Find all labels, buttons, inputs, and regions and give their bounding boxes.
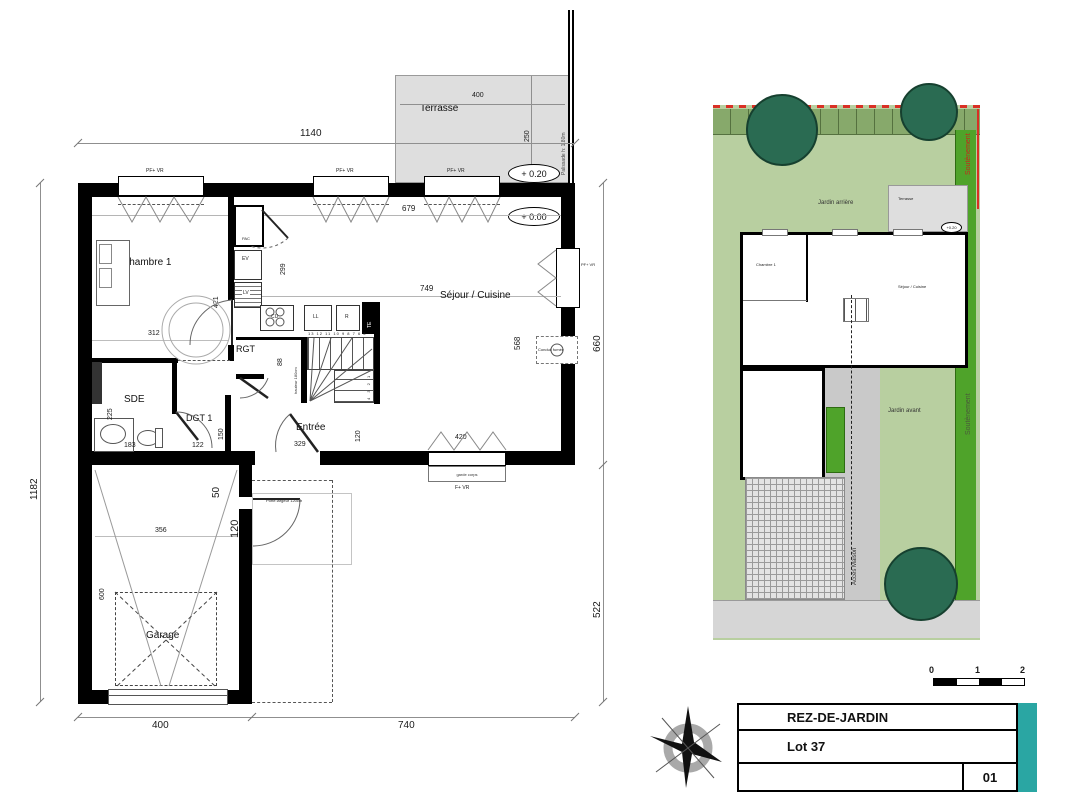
scalebar-1: 1 bbox=[975, 665, 980, 675]
terrasse-dim-line bbox=[400, 104, 565, 105]
stairs-numbers-top: 13 12 11 10 9 8 7 6 5 bbox=[308, 331, 367, 336]
dim-chambre-h: 421 bbox=[213, 296, 220, 308]
window-sejour-2-sill bbox=[424, 204, 500, 205]
site-sejour-label: Séjour / Cuisine bbox=[898, 284, 926, 289]
site-house-wall-1 bbox=[806, 232, 808, 302]
wall-sde-right bbox=[172, 358, 177, 414]
garde-corps-rail: garde corps bbox=[428, 466, 506, 482]
entry-door-gap bbox=[255, 451, 320, 465]
soutenement-label-top: Soutènement bbox=[965, 133, 972, 175]
level-marker-000: + 0.00 bbox=[508, 207, 560, 226]
dim-left: 1182 bbox=[29, 478, 40, 500]
sheet-number-cell: 01 bbox=[962, 764, 1016, 790]
dim-door-w: 150 bbox=[218, 428, 225, 440]
soutenement-label-side: Soutènement bbox=[965, 393, 972, 435]
room-label-entree: Entrée bbox=[296, 422, 325, 433]
window-sejour-1-label: PF+ VR bbox=[336, 168, 354, 174]
stairs-height-label: hauteur 180cm bbox=[293, 367, 298, 394]
garage-door bbox=[108, 689, 228, 705]
grid-line-chambre bbox=[92, 340, 228, 341]
parking-space bbox=[115, 592, 217, 686]
dim-right-upper: 660 bbox=[592, 335, 603, 352]
lot-number: Lot 37 bbox=[739, 739, 825, 754]
dim-line-right-down bbox=[603, 465, 604, 702]
garde-corps-label: garde corps bbox=[456, 472, 477, 477]
dim-right-lower: 522 bbox=[592, 601, 603, 618]
dim-top: 1140 bbox=[300, 128, 322, 139]
dim-garage-d: 600 bbox=[99, 588, 106, 600]
room-label-rgt: RGT bbox=[236, 344, 255, 354]
dim-bottom-right: 740 bbox=[398, 720, 415, 731]
floorplan-sheet: Terrasse 400 250 Palissade h: 1.80m + 0.… bbox=[0, 0, 1075, 800]
jardin-arriere-label: Jardin arrière bbox=[818, 200, 853, 206]
title-row-sheet: 01 bbox=[739, 764, 1016, 790]
dim-sde-d: 225 bbox=[107, 408, 114, 420]
dressing-dashed bbox=[178, 360, 230, 361]
dim-entree-w: 329 bbox=[294, 441, 306, 448]
window-chambre-label: PF+ VR bbox=[146, 168, 164, 174]
site-boundary-right bbox=[977, 109, 979, 209]
dim-garage-w: 356 bbox=[155, 527, 167, 534]
porte-garage-zone bbox=[252, 493, 352, 565]
cu-label: CU bbox=[271, 314, 278, 320]
site-planting-strip bbox=[826, 407, 845, 473]
dim-kitchen-d: 299 bbox=[280, 263, 287, 275]
wall-dgt bbox=[225, 395, 231, 452]
scalebar-seg-4 bbox=[1002, 679, 1025, 685]
window-bay-label: F+ VR bbox=[455, 485, 469, 491]
tree-front bbox=[884, 547, 958, 621]
room-label-sde: SDE bbox=[124, 394, 145, 405]
room-label-sejour: Séjour / Cuisine bbox=[440, 290, 511, 301]
vanity-basin bbox=[100, 424, 126, 444]
toilet-tank bbox=[155, 428, 163, 448]
scalebar-seg-2 bbox=[957, 679, 980, 685]
dim-dgt-w: 122 bbox=[192, 442, 204, 449]
dim-line-bottom bbox=[78, 717, 575, 718]
tree-back-2 bbox=[900, 83, 958, 141]
palissade-label: Palissade h: 1.80m bbox=[561, 132, 567, 175]
wall-rgt-bottom bbox=[236, 374, 264, 379]
dim-sejour-d: 568 bbox=[513, 337, 522, 350]
te-panel bbox=[362, 302, 378, 334]
scalebar bbox=[933, 678, 1025, 686]
dim-porte-120: 120 bbox=[229, 520, 241, 538]
room-label-dgt1: DGT 1 bbox=[186, 413, 212, 423]
window-chambre-sill bbox=[118, 204, 204, 205]
dim-bay: 420 bbox=[455, 434, 467, 441]
title-block-accent bbox=[1018, 703, 1037, 792]
wall-sde-top bbox=[92, 358, 178, 363]
terrasse-depth-dim: 250 bbox=[524, 130, 531, 142]
te-label: TE bbox=[367, 322, 373, 328]
bed-pillow-2 bbox=[99, 268, 112, 288]
dim-line-679 bbox=[92, 215, 561, 216]
level-marker-plus020: + 0.20 bbox=[508, 164, 560, 183]
window-right bbox=[556, 248, 580, 308]
site-house-stairs bbox=[843, 298, 869, 322]
scalebar-0: 0 bbox=[929, 665, 934, 675]
title-row-floor: REZ-DE-JARDIN bbox=[739, 705, 1016, 731]
dim-chambre-w: 312 bbox=[148, 330, 160, 337]
dim-sejour-w: 749 bbox=[420, 284, 433, 293]
dim-line-749 bbox=[236, 296, 561, 297]
site-window-3 bbox=[893, 229, 923, 236]
wall-right bbox=[561, 183, 575, 465]
wall-chambre-right-low bbox=[228, 345, 234, 361]
conduit-fumee-label: Conduit fumée bbox=[538, 347, 564, 352]
dim-sde-w: 183 bbox=[124, 442, 136, 449]
window-right-label: PF+ VR bbox=[581, 262, 595, 267]
window-sejour-1 bbox=[313, 176, 389, 196]
scalebar-2: 2 bbox=[1020, 665, 1025, 675]
ev-label: EV bbox=[242, 256, 249, 262]
terrasse-width-dim: 400 bbox=[472, 92, 484, 99]
window-sejour-1-sill bbox=[313, 204, 389, 205]
stairs-upper-run bbox=[307, 337, 374, 370]
dim-bottom-left: 400 bbox=[152, 720, 169, 731]
window-sejour-2 bbox=[424, 176, 500, 196]
site-house-wall-2 bbox=[743, 300, 807, 301]
site-path-dashed bbox=[851, 295, 852, 585]
bed-pillow-1 bbox=[99, 244, 112, 264]
tree-back-1 bbox=[746, 94, 818, 166]
dim-line-right-up bbox=[603, 183, 604, 465]
wall-rgt-top bbox=[236, 337, 307, 340]
porte-garage-label: Porte largeur 120cm bbox=[266, 498, 302, 503]
lv-label: LV bbox=[242, 290, 250, 296]
site-garage bbox=[740, 368, 825, 480]
window-bay bbox=[428, 452, 506, 466]
boundary-dashed-h1 bbox=[252, 480, 332, 481]
pac-label: PAC bbox=[242, 236, 250, 241]
scalebar-seg-1 bbox=[934, 679, 957, 685]
stairs-numbers-side: 4 3 2 1 bbox=[366, 374, 371, 400]
wall-left bbox=[78, 183, 92, 702]
title-block: REZ-DE-JARDIN Lot 37 01 bbox=[737, 703, 1018, 792]
sheet-number: 01 bbox=[983, 770, 997, 785]
r-label: R bbox=[345, 314, 349, 320]
dim-rgt: 88 bbox=[277, 358, 284, 366]
site-window-2 bbox=[832, 229, 858, 236]
boundary-dashed-h2 bbox=[252, 702, 332, 703]
site-driveway bbox=[745, 477, 845, 600]
window-sejour-2-label: PF+ VR bbox=[447, 168, 465, 174]
palissade-fence bbox=[568, 10, 574, 185]
site-chambre-label: Chambre 1 bbox=[756, 262, 776, 267]
scalebar-seg-3 bbox=[979, 679, 1002, 685]
compass-rose bbox=[650, 706, 722, 788]
sink-ev bbox=[234, 250, 262, 280]
dim-line-top bbox=[78, 143, 575, 144]
shower-wall bbox=[92, 362, 102, 404]
acces-maison-label: Accès Maison bbox=[852, 548, 858, 585]
dim-offset-50: 50 bbox=[211, 487, 222, 498]
dim-line-left bbox=[40, 183, 41, 702]
dim-interior-top: 679 bbox=[402, 204, 415, 213]
floor-title: REZ-DE-JARDIN bbox=[739, 710, 888, 725]
title-row-lot: Lot 37 bbox=[739, 731, 1016, 764]
ll-label: LL bbox=[313, 314, 319, 320]
site-terrasse-label: Terrasse bbox=[898, 196, 913, 201]
dim-entree-d: 120 bbox=[355, 430, 362, 442]
jardin-avant-label: Jardin avant bbox=[888, 408, 921, 414]
grid-line-garage bbox=[95, 536, 237, 537]
window-chambre bbox=[118, 176, 204, 196]
service-door-gap bbox=[239, 497, 252, 509]
boundary-dashed-v bbox=[332, 480, 333, 702]
site-window-1 bbox=[762, 229, 788, 236]
